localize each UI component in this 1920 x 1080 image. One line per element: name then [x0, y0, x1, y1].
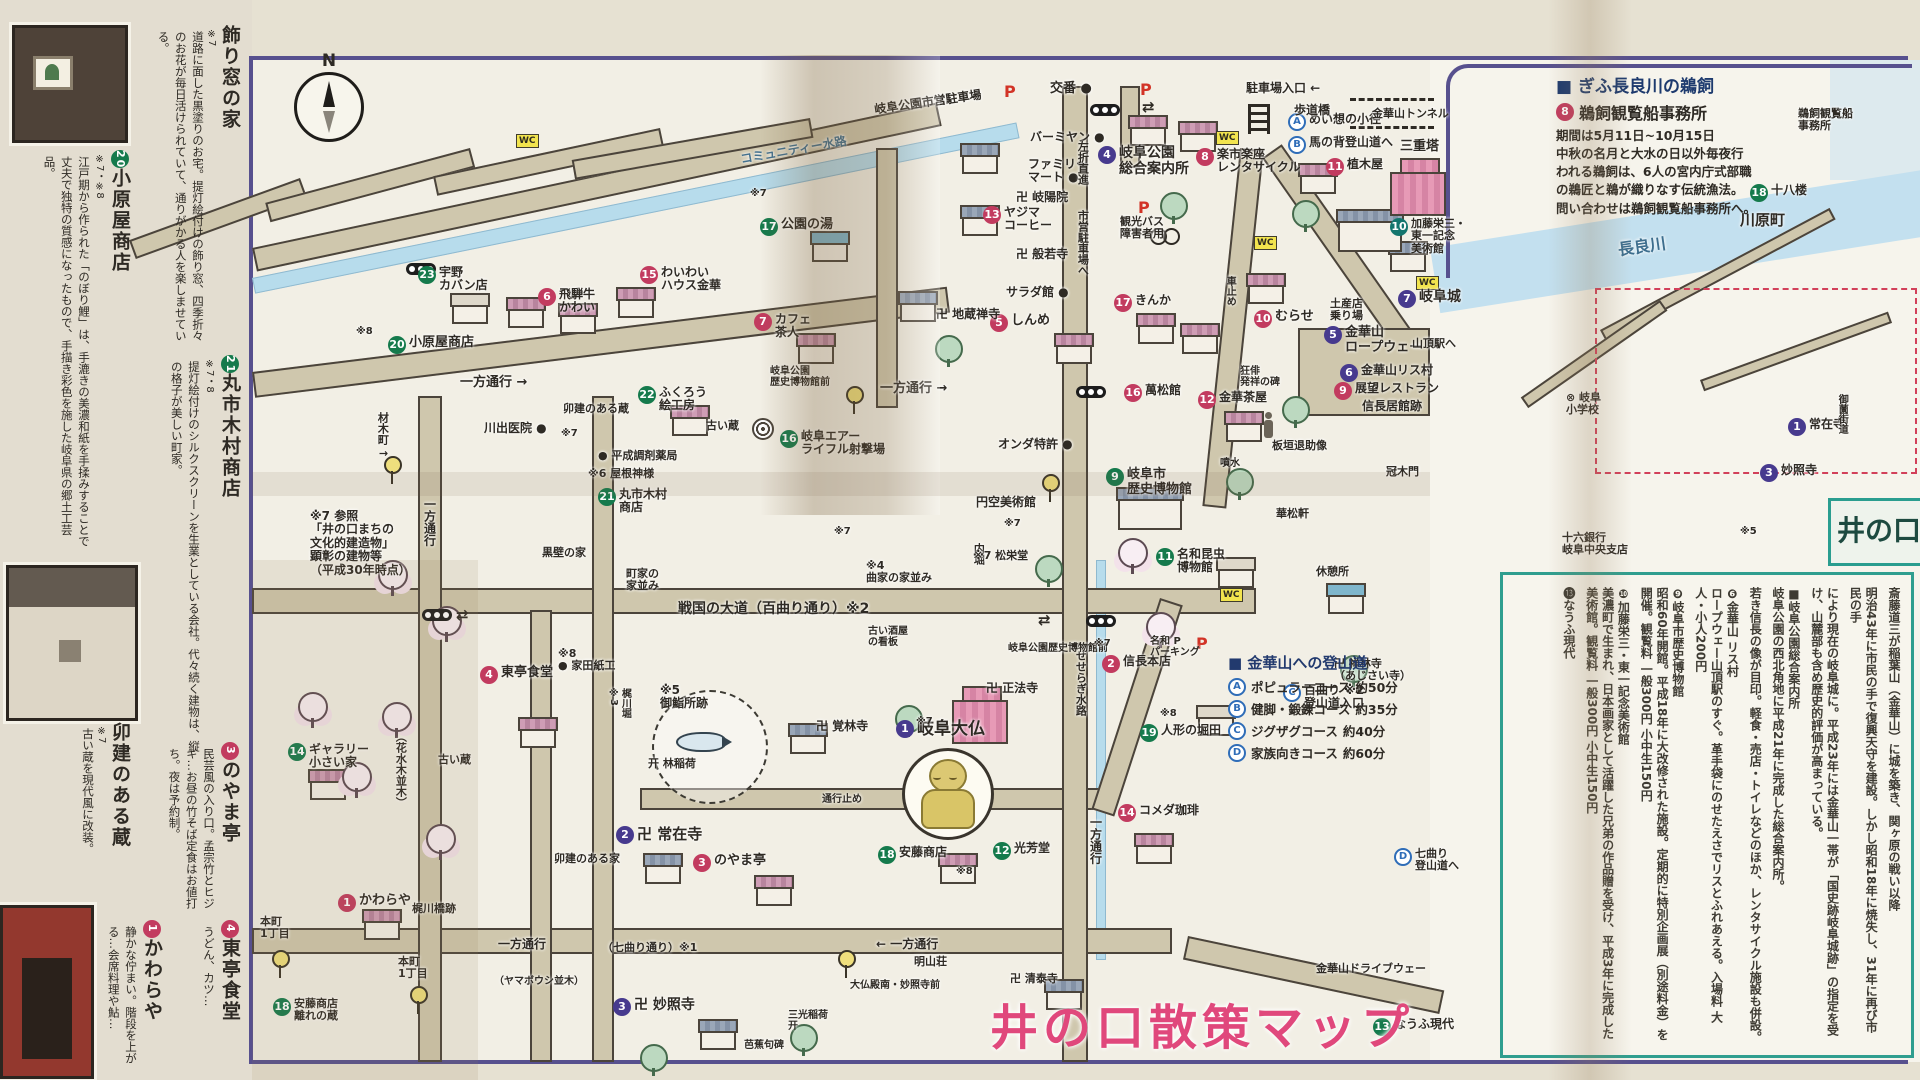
map-poi-17: 17公園の湯 [760, 218, 833, 236]
left-section-6: 1かわらや静かな佇まい。階段を上がる…会席料理や鮎… [92, 920, 166, 1072]
marker-badge: 2 [616, 826, 634, 844]
map-label: 卍 地蔵禅寺 [936, 308, 1000, 321]
marker-text: 公園の湯 [781, 218, 833, 233]
marker-text: 信長居館跡 [1362, 400, 1422, 413]
right-column-text: ❾岐阜市歴史博物館 昭和60年開館。平成18年に大改修された施設。定期的に特別企… [1637, 587, 1684, 1043]
map-poi-6: 6飛騨牛 かわい [538, 288, 595, 315]
great-buddha-icon [902, 748, 994, 840]
sakura-icon [382, 702, 412, 732]
legend-items: Aポピュラーコース約50分B健脚・鍛錬コース約35分Cジグザグコース約40分D家… [1228, 677, 1432, 762]
marker-text: 一方通行 [1088, 816, 1101, 864]
map-label: 卯建のある家 [554, 853, 620, 865]
wc-icon: WC [516, 134, 539, 148]
map-label: オンダ特許 ● [998, 438, 1073, 451]
marker-text: せせらぎ水路 [1074, 650, 1086, 716]
map-label: 材木町 ↑ [376, 412, 425, 458]
marker-text: 岐阜エアー ライフル射撃場 [801, 430, 885, 457]
building-shop-icon [672, 414, 708, 436]
marker-text: 梶川堀 ※3 [608, 688, 630, 718]
marker-badge: 3 [613, 998, 631, 1016]
marker-text: 展望レストラン [1355, 382, 1439, 395]
bus-stop-icon [1042, 474, 1060, 492]
marker-text: 梶川橋跡 [412, 903, 456, 915]
marker-text: ← 一方通行 [876, 938, 938, 951]
map-label: 本町 1丁目 [398, 956, 428, 981]
right-column-text: ❿加藤栄三・東一記念美術館 美濃町で生まれ、日本画家として活躍した兄弟の作品贈を… [1583, 587, 1630, 1043]
left-section-badge: 3 [221, 742, 239, 760]
fish-icon [676, 732, 726, 752]
map-label: ⊗ 岐阜 小学校 [1566, 392, 1601, 417]
map-label: 休憩所 [1316, 566, 1349, 578]
marker-text: （七曲り通り）※1 [602, 942, 697, 954]
parking-icon: P [1140, 82, 1152, 98]
marker-text: 板垣退助像 [1272, 440, 1327, 452]
building-shop-icon [1138, 322, 1174, 344]
map-label: 卍 正法寺 [986, 682, 1038, 695]
map-label: 卍 般若寺 [1016, 248, 1068, 261]
photo-udatsu-kura [6, 565, 138, 721]
marker-text: 七曲り 登山道へ [1415, 848, 1459, 873]
map-label: 一方通行 [1088, 816, 1142, 864]
map-poi-12: 12金華茶屋 [1198, 391, 1267, 409]
map-label: 一方通行 [422, 498, 476, 546]
marker-text: 十六銀行 岐阜中央支店 [1562, 532, 1628, 557]
sheet-border-top [252, 56, 1908, 60]
map-poi-B: B馬の背登山道へ [1288, 136, 1393, 154]
map-label: 土産店 乗り場 [1330, 298, 1363, 323]
road-segment [876, 148, 898, 408]
marker-badge: D [1394, 848, 1412, 866]
marker-badge: 18 [273, 998, 291, 1016]
tunnel-dash-top [1350, 98, 1434, 101]
ukai-office-badge: 8 [1556, 103, 1574, 121]
ukai-heading: ■ ぎふ長良川の鵜飼 [1556, 72, 1912, 97]
traffic-signal-icon [1090, 104, 1120, 116]
map-poi-3: 3のやま亭 [693, 854, 766, 872]
map-label: ※8 ● 家田紙工 [558, 648, 615, 673]
left-section-title: 飾り窓の家 [217, 25, 244, 345]
photo-red-gate-restaurant [0, 905, 94, 1079]
marker-text: ※7 [750, 188, 767, 199]
map-label: ※7 [916, 716, 933, 727]
map-label: ※7 松栄堂 [973, 550, 1028, 562]
legend-title: ■ 金華山への登山道 [1228, 652, 1432, 673]
map-label: 華松軒 [1276, 508, 1309, 520]
marker-text: のやま亭 [714, 854, 766, 869]
two-way-arrow-icon: ⇄ [1038, 611, 1051, 629]
tree-icon [1160, 192, 1188, 220]
marker-text: 古い蔵 [706, 420, 739, 432]
legend-item-label: 健脚・鍛錬コース [1251, 699, 1350, 718]
bus-stop-icon [838, 950, 856, 968]
legend-item-time: 約60分 [1343, 743, 1385, 762]
building-temple-icon [700, 1028, 736, 1050]
tree-icon [1292, 200, 1320, 228]
marker-text: 岐阜城 [1419, 290, 1461, 306]
sakura-icon [298, 692, 328, 722]
parking-icon: P [1004, 84, 1016, 100]
map-poi-21: 21丸市木村 商店 [598, 488, 667, 515]
map-poi-3: 3妙照寺 [1760, 464, 1817, 482]
marker-text: ※8 [356, 326, 373, 337]
marker-text: 金華山 ロープウェー [1345, 326, 1422, 355]
map-poi-18: 18安藤商店 離れの蔵 [273, 998, 338, 1023]
map-poi-4: 4東亭食堂 [480, 666, 553, 684]
marker-text: ※4 曲家の家並み [866, 560, 932, 585]
two-way-arrow-icon: ⇄ [456, 606, 469, 624]
marker-text: 車止め [1224, 276, 1235, 306]
left-section-badge: 1 [143, 920, 161, 938]
marker-text: ※7 [1004, 518, 1021, 529]
legend-item-label: 家族向きコース [1251, 743, 1338, 762]
marker-text: 宇野 カバン店 [439, 266, 488, 293]
marker-badge: 9 [1106, 468, 1124, 486]
marker-text: ヤジマ コーヒー [1004, 206, 1052, 233]
right-text-box: 斎藤道三が稲葉山（金華山）に城を築き、関ヶ原の戦い以降明治43年に市民の手で復興… [1500, 572, 1914, 1058]
marker-text: 川出医院 ● [484, 422, 547, 435]
marker-text: 噴水 [1220, 458, 1240, 469]
ukai-subheading: 8 鵜飼観覧船事務所 [1556, 100, 1912, 124]
legend-item: Aポピュラーコース約50分 [1228, 677, 1432, 696]
marker-text: 卍 覚林寺 [816, 720, 868, 733]
statue-icon [1264, 420, 1273, 438]
map-label: 古い蔵 [438, 754, 471, 766]
marker-badge: 22 [638, 386, 656, 404]
marker-text: 加藤栄三・ 東一記念 美術館 [1411, 218, 1466, 255]
marker-text: 市営駐車場へ [1076, 210, 1088, 276]
building-shop-icon [618, 296, 654, 318]
map-label: 黒壁の家 [542, 547, 586, 559]
right-column-text: 斎藤道三が稲葉山（金華山）に城を築き、関ヶ原の戦い以降 [1885, 587, 1901, 1043]
legend-item: Cジグザグコース約40分 [1228, 721, 1432, 740]
legend-item-time: 約40分 [1343, 721, 1385, 740]
left-section-body: 江戸期から作られた「のぼり鯉」は、手漉きの美濃和紙を手揉みすることで丈夫で独特の… [40, 156, 92, 550]
marker-text: 三重塔 [1400, 140, 1439, 155]
left-section-badge: 21 [221, 355, 239, 373]
left-section-note: ※7 [206, 29, 217, 345]
trail-legend: ■ 金華山への登山道 Aポピュラーコース約50分B健脚・鍛錬コース約35分Cジグ… [1228, 652, 1432, 765]
building-blue-icon [1328, 592, 1364, 614]
map-poi-10: 10加藤栄三・ 東一記念 美術館 [1390, 218, 1466, 255]
marker-text: 大仏殿南・妙照寺前 [850, 980, 940, 991]
marker-badge: 7 [1398, 290, 1416, 308]
marker-text: ふくろう 絵工房 [659, 386, 707, 413]
wc-icon: WC [1254, 236, 1277, 250]
map-label: ※7 [750, 188, 767, 199]
map-label: 金華山トンネル [1372, 108, 1449, 120]
marker-badge: 12 [1198, 391, 1216, 409]
right-column-text: ■岐阜公園総合案内所 岐阜公園の西北角地に平成21年に完成した総合案内所。 [1769, 587, 1801, 1043]
marker-badge: 13 [983, 206, 1001, 224]
map-label: ※5 [1740, 526, 1757, 537]
marker-text: 卍 常在寺 [637, 826, 702, 843]
marker-text: 卍 般若寺 [1016, 248, 1068, 261]
map-poi-13: 13ヤジマ コーヒー [983, 206, 1052, 233]
marker-text: 妙照寺 [1781, 464, 1817, 477]
left-section-body: うどん、カツ… [200, 926, 217, 1072]
marker-text: しんめ [1011, 314, 1050, 329]
marker-badge: 9 [1334, 382, 1352, 400]
wc-icon: WC [1216, 131, 1239, 145]
map-label: 明山荘 [914, 956, 947, 968]
marker-text: ⊗ 岐阜 小学校 [1566, 392, 1601, 417]
marker-badge: 4 [480, 666, 498, 684]
map-photo-stage: N ■ 金華山への登山道 Aポピュラーコース約50分B健脚・鍛錬コース約35分C… [0, 0, 1920, 1080]
marker-text: 金華山リス村 [1361, 364, 1433, 377]
map-poi-23: 23宇野 カバン店 [418, 266, 488, 293]
marker-badge: 12 [993, 842, 1011, 860]
map-label: 川出医院 ● [484, 422, 547, 435]
left-section-title: 21丸市木村商店 [217, 355, 244, 755]
map-label: ※5 御鮨所跡 [660, 684, 708, 711]
building-temple-icon [900, 300, 936, 322]
map-label: 板垣退助像 [1272, 440, 1327, 452]
map-label: 十六銀行 岐阜中央支店 [1562, 532, 1628, 557]
legend-item: D家族向きコース約60分 [1228, 743, 1432, 762]
left-section-note: ※7・※8 [92, 154, 107, 550]
map-label: ※7 参照 「井の口まちの 文化的建造物」 顕彰の建物等 （平成30年時点） [310, 510, 411, 577]
marker-text: 芭蕉句碑 [744, 1040, 784, 1051]
map-label: ※7 [1004, 518, 1021, 529]
marker-text: 円空美術館 [976, 496, 1036, 509]
marker-text: ※5 [1740, 526, 1757, 537]
right-column-text: 明治43年に市民の手で復興天守を建設。しかし昭和18年に焼失し、31年に再び市民… [1847, 587, 1879, 1043]
legend-item: B健脚・鍛錬コース約35分 [1228, 699, 1432, 718]
marker-text: 材木町 ↑ [376, 412, 388, 458]
map-poi-10: 10むらせ [1254, 310, 1314, 328]
map-label: 古い蔵 [706, 420, 739, 432]
marker-badge: 23 [418, 266, 436, 284]
map-label: 本町 1丁目 [260, 916, 290, 941]
left-section-7: 4東亭食堂うどん、カツ… [170, 920, 244, 1072]
left-section-badge: 20 [111, 150, 129, 168]
marker-text: 岐阜市 歴史博物館 [1127, 468, 1192, 497]
map-label: 一方通行 [498, 938, 546, 951]
building-shop-icon [1130, 124, 1166, 146]
marker-text: 戦国の大道（百曲り通り）※2 [678, 602, 869, 618]
building-shop-icon [1226, 420, 1262, 442]
marker-text: 古い酒屋 の看板 [868, 626, 908, 648]
marker-text: 卍 正法寺 [986, 682, 1038, 695]
marker-text: ギャラリー 小さい家 [309, 743, 369, 770]
marker-text: 金華山ドライブウェー [1316, 963, 1426, 975]
marker-badge: 16 [1124, 384, 1142, 402]
building-shop-icon [756, 884, 792, 906]
marker-text: 卍 清泰寺 [1010, 973, 1058, 985]
map-label: 山頂駅へ [1412, 338, 1456, 350]
marker-text: 名和 P パーキング [1150, 636, 1200, 658]
map-poi-20: 20小原屋商店 [388, 336, 474, 354]
map-label: ※8 [1160, 708, 1177, 719]
map-poi-15: 15わいわい ハウス金華 [640, 266, 721, 293]
marker-badge: 20 [388, 336, 406, 354]
compass-needle-tail [323, 111, 335, 133]
marker-text: 一方通行 [498, 938, 546, 951]
right-column-text: 若き信長の像が目印。軽食・売店・トイレなどのほか、レンタサイクル施設も併設。 [1746, 587, 1762, 1043]
marker-text: 古い蔵 [438, 754, 471, 766]
ukai-info-box: ■ ぎふ長良川の鵜飼 8 鵜飼観覧船事務所 期間は5月11日~10月15日 中秋… [1556, 72, 1912, 218]
marker-badge: 11 [1326, 158, 1344, 176]
map-label: 卍 清泰寺 [1010, 973, 1058, 985]
map-label: 大仏殿南・妙照寺前 [850, 980, 940, 991]
marker-badge: 10 [1254, 310, 1272, 328]
marker-badge: 17 [760, 218, 778, 236]
marker-text: 岐阜公園 総合案内所 [1119, 146, 1189, 177]
map-poi-11: 11植木屋 [1326, 158, 1383, 176]
marker-text: 本町 1丁目 [260, 916, 290, 941]
left-section-title: 卯建のある蔵 [107, 722, 134, 892]
right-column-text: ❻金華山 リス村 ロープウェー山頂駅のすぐ。革手袋にのせたえさでリスとふれあえる… [1692, 587, 1739, 1043]
marker-badge: 15 [640, 266, 658, 284]
map-label: 戦国の大道（百曲り通り）※2 [678, 602, 869, 618]
building-temple-icon [645, 862, 681, 884]
marker-badge: 14 [288, 743, 306, 761]
marker-text: ※7 松栄堂 [973, 550, 1028, 562]
map-label: せせらぎ水路 [1074, 650, 1148, 716]
left-section-body: 道路に面した黒塗りのお宅。提灯絵付けの飾り窓、四季折々のお花が毎日活けられていて… [154, 31, 206, 345]
marker-badge: 7 [754, 313, 772, 331]
marker-badge: 6 [538, 288, 556, 306]
map-poi-7: 7カフェ 茶人 [754, 313, 811, 340]
map-poi-1: 1かわらや [338, 894, 411, 912]
tree-icon [935, 335, 963, 363]
right-text-columns: 斎藤道三が稲葉山（金華山）に城を築き、関ヶ原の戦い以降明治43年に市民の手で復興… [1513, 587, 1901, 1043]
traffic-signal-icon [1076, 386, 1106, 398]
marker-text: 左折直進 [1076, 141, 1088, 185]
map-poi-14: 14ギャラリー 小さい家 [288, 743, 369, 770]
map-label: 三光稲荷 开 [788, 1010, 828, 1032]
map-label: 歩道橋 [1294, 104, 1330, 117]
course-letter-badge: D [1228, 744, 1246, 762]
map-label: 冠木門 [1386, 466, 1419, 478]
course-letter-badge: B [1228, 700, 1246, 718]
map-poi-1: 1岐阜大仏 [896, 720, 985, 739]
marker-badge: 16 [780, 430, 798, 448]
marker-text: 一方通行 [422, 498, 435, 546]
marker-text: 开 林稲荷 [648, 758, 696, 770]
left-section-title: 20小原屋商店 [107, 150, 134, 550]
map-label: ※8 [956, 866, 973, 877]
legend-item-time: 約50分 [1355, 677, 1397, 696]
left-section-body: 提灯絵付けのシルクスクリーンを生業としている会社。代々続く建物は、縦の格子が美し… [168, 361, 203, 755]
map-label: サラダ館 ● [1006, 286, 1069, 299]
map-label: 开 林稲荷 [648, 758, 696, 770]
marker-text: ※8 [956, 866, 973, 877]
marker-text: 岐阜公園歴史博物館前 [1008, 643, 1108, 654]
map-poi-5: 5金華山 ロープウェー [1324, 326, 1422, 355]
building-shop-icon [520, 726, 556, 748]
marker-text: 丸市木村 商店 [619, 488, 667, 515]
map-label: ※4 曲家の家並み [866, 560, 932, 585]
marker-text: 卍 岐陽院 [1016, 191, 1068, 204]
marker-text: 土産店 乗り場 [1330, 298, 1363, 323]
building-shop-icon [364, 918, 400, 940]
marker-text: 安藤商店 離れの蔵 [294, 998, 338, 1023]
map-label: ← 一方通行 [876, 938, 938, 951]
map-label: （ヤマボウシ並木） [494, 976, 584, 987]
marker-text: 飛騨牛 かわい [559, 288, 595, 315]
marker-badge: 5 [1324, 326, 1342, 344]
map-poi-11: 11名和昆虫 博物館 [1156, 548, 1225, 575]
marker-text: 明山荘 [914, 956, 947, 968]
left-section-body: 古い蔵を現代風に改装。 [79, 728, 96, 892]
buddha-eye-right [949, 775, 957, 780]
legend-item-label: ジグザグコース [1251, 721, 1338, 740]
marker-badge: 3 [1760, 464, 1778, 482]
map-poi-8: 8楽市楽座 レンタサイクル [1196, 148, 1300, 175]
left-section-1: 飾り窓の家※7道路に面した黒塗りのお宅。提灯絵付けの飾り窓、四季折々のお花が毎日… [140, 25, 244, 345]
compass-north-label: N [297, 51, 361, 71]
marker-badge: 1 [896, 720, 914, 738]
map-poi-22: 22ふくろう 絵工房 [638, 386, 707, 413]
building-shop-icon [310, 778, 346, 800]
marker-text: 卯建のある蔵 [563, 403, 629, 415]
map-label: 金華山ドライブウェー [1316, 963, 1426, 975]
marker-text: 楽市楽座 レンタサイクル [1217, 148, 1300, 175]
marker-text: カフェ 茶人 [775, 313, 811, 340]
marker-text: 御薗街道 [1836, 394, 1847, 434]
building-blue-icon [812, 240, 848, 262]
left-section-3: 21丸市木村商店※7・8提灯絵付けのシルクスクリーンを生業としている会社。代々続… [140, 355, 244, 755]
building-white-icon [452, 302, 488, 324]
building-temple-icon [962, 152, 998, 174]
compass-rose: N [294, 72, 364, 142]
map-label: 古い酒屋 の看板 [868, 626, 908, 648]
marker-text: 山頂駅へ [1412, 338, 1456, 350]
map-label: 駐車場入口 ← [1246, 82, 1320, 95]
ladder-icon [1248, 104, 1270, 134]
marker-text: 一方通行 → [880, 382, 947, 397]
map-poi-7: 7岐阜城 [1398, 290, 1461, 308]
map-label: 岐阜公園 歴史博物館前 [770, 366, 830, 388]
marker-badge: 1 [1788, 418, 1806, 436]
traffic-signal-icon [422, 609, 452, 621]
map-label: 左折直進 [1076, 141, 1125, 185]
marker-text: 三光稲荷 开 [788, 1010, 828, 1032]
map-poi-19: 19人形の堀田 [1140, 724, 1221, 742]
map-label: ● 平成調剤薬局 [598, 450, 677, 462]
marker-text: ※8 [1160, 708, 1177, 719]
wc-icon: WC [1416, 276, 1439, 290]
map-poi-9: 9展望レストラン [1334, 382, 1439, 400]
bus-stop-icon [410, 986, 428, 1004]
marker-text: かわらや [359, 894, 411, 909]
map-label: ※7 [561, 428, 578, 439]
marker-text: 植木屋 [1347, 158, 1383, 171]
map-label: 通行止め [822, 794, 862, 805]
left-section-title: 4東亭食堂 [217, 920, 244, 1072]
marker-text: コメダ珈琲 [1139, 804, 1199, 817]
marker-text: サラダ館 ● [1006, 286, 1069, 299]
marker-text: きんか [1135, 294, 1171, 307]
marker-text: 人形の堀田 [1161, 724, 1221, 737]
map-label: ※6 屋根神様 [588, 468, 654, 480]
bus-stop-icon [384, 456, 402, 474]
traffic-signal-icon [1086, 615, 1116, 627]
left-section-5: 3のやま亭民芸風の入り口。孟宗竹とヒジキ…お昼の竹そば定食はお値打ち。夜は予約制… [140, 742, 244, 912]
marker-text: ※7 [1094, 638, 1111, 649]
target-icon [752, 418, 774, 440]
bus-stop-icon [846, 386, 864, 404]
map-label: ※8 [356, 326, 373, 337]
right-column-text: ⓭なうふ現代 [1560, 587, 1576, 1043]
map-label: 梶川橋跡 [412, 903, 456, 915]
marker-text: 華松軒 [1276, 508, 1309, 520]
marker-text: 交番 ● [1050, 82, 1092, 97]
marker-text: 駐車場入口 ← [1246, 82, 1320, 95]
course-letter-badge: C [1228, 722, 1246, 740]
marker-badge: 21 [598, 488, 616, 506]
